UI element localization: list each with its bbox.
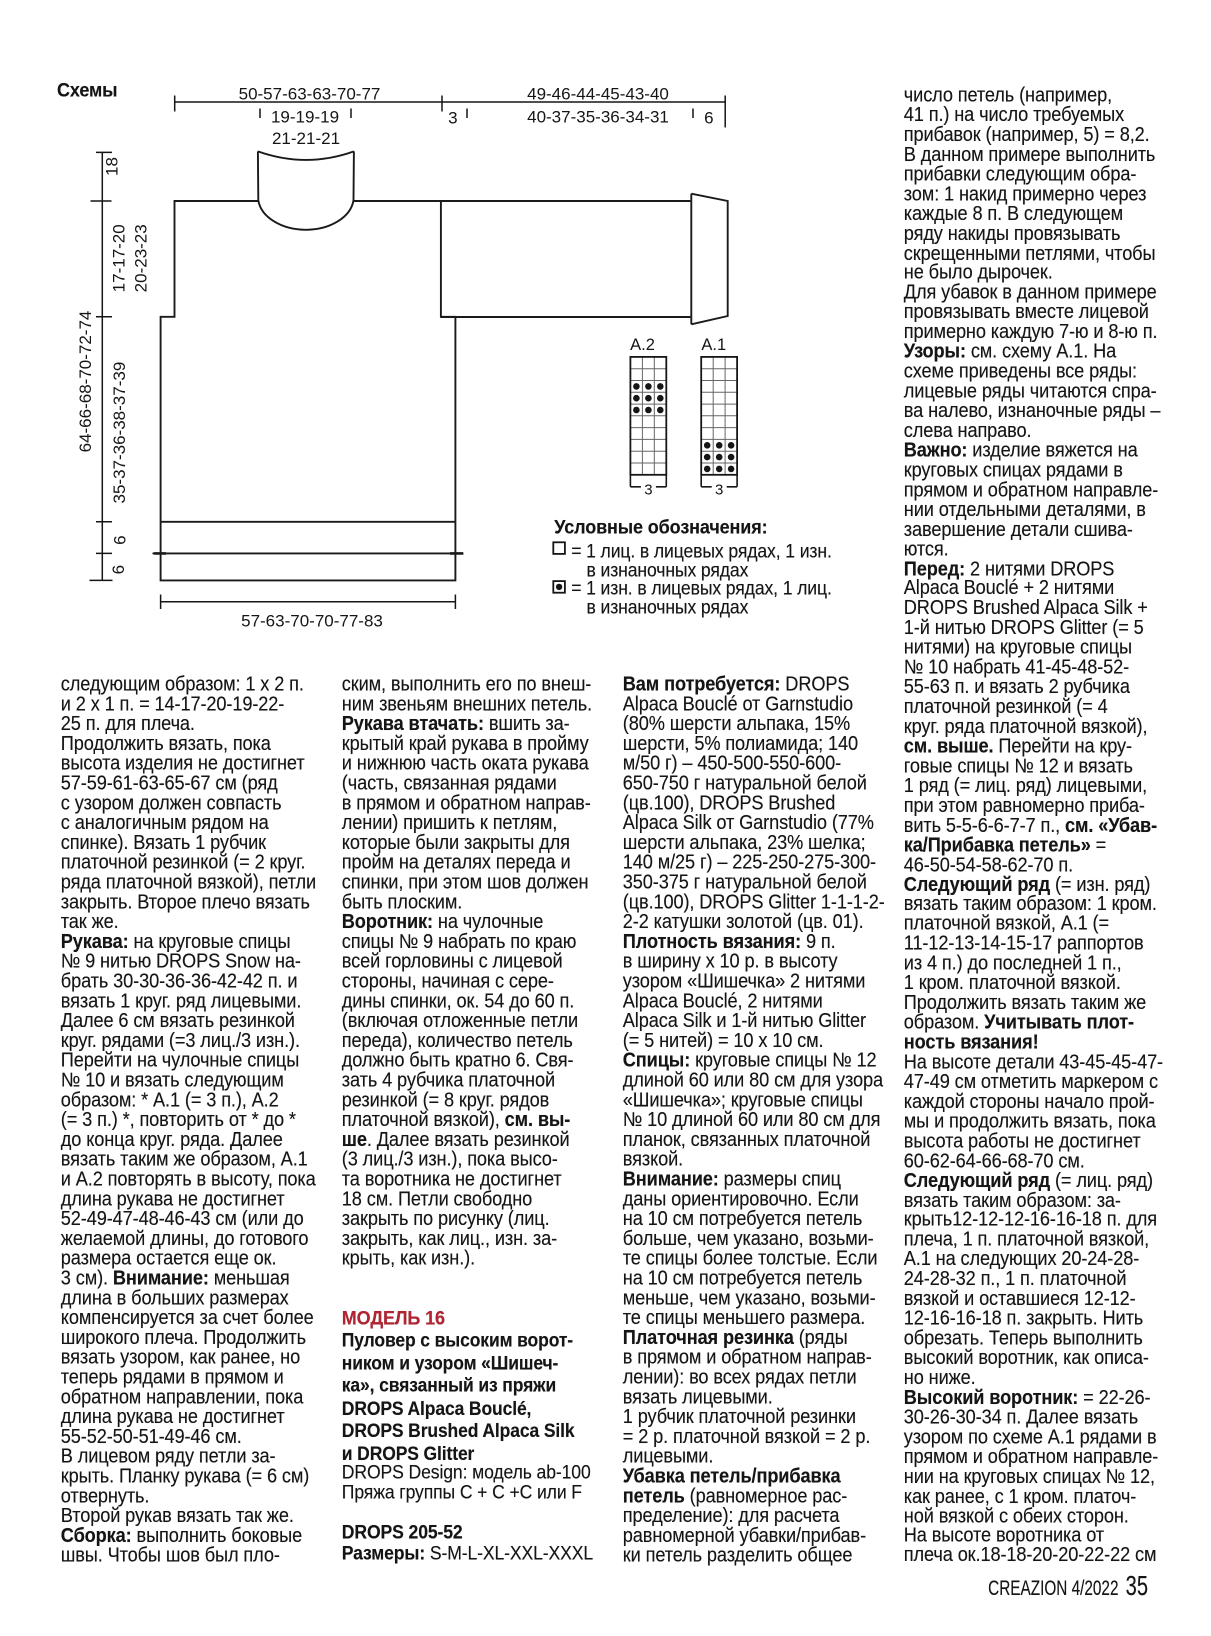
svg-text:3: 3 [715,481,723,498]
svg-text:17-17-20: 17-17-20 [110,224,129,292]
svg-text:6: 6 [704,109,713,128]
svg-text:3: 3 [448,109,457,128]
svg-text:6: 6 [111,535,130,544]
svg-text:49-46-44-45-43-40: 49-46-44-45-43-40 [527,85,669,104]
svg-text:50-57-63-63-70-77: 50-57-63-63-70-77 [239,85,381,104]
svg-text:57-63-70-70-77-83: 57-63-70-70-77-83 [241,612,383,631]
svg-text:40-37-35-36-34-31: 40-37-35-36-34-31 [527,108,669,127]
svg-text:20-23-23: 20-23-23 [132,224,151,292]
svg-text:35-37-36-38-37-39: 35-37-36-38-37-39 [110,362,129,504]
svg-text:6: 6 [109,565,128,574]
svg-text:A.2: A.2 [630,336,655,354]
svg-text:18: 18 [103,157,122,176]
svg-text:64-66-68-70-72-74: 64-66-68-70-72-74 [76,311,95,453]
svg-text:A.1: A.1 [701,336,726,354]
svg-text:19-19-19: 19-19-19 [271,108,339,127]
svg-text:3: 3 [644,481,652,498]
svg-text:21-21-21: 21-21-21 [272,129,340,148]
